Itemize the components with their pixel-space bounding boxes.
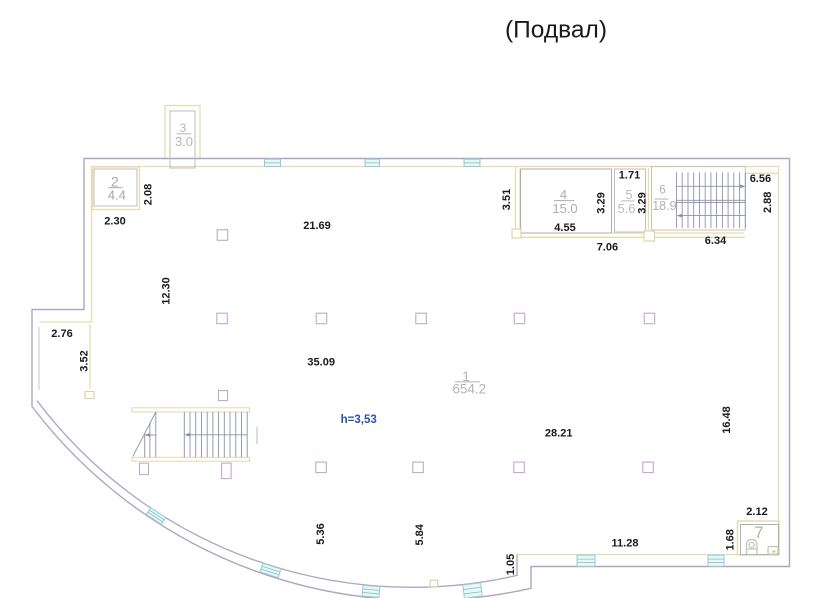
svg-text:15.0: 15.0 [552,201,577,216]
svg-text:12.30: 12.30 [160,277,172,305]
svg-text:1.71: 1.71 [619,170,640,182]
svg-text:5.36: 5.36 [315,523,327,544]
svg-text:5.84: 5.84 [414,523,426,545]
svg-text:4.55: 4.55 [554,222,575,234]
svg-text:4: 4 [560,187,567,202]
svg-text:3.51: 3.51 [501,189,513,210]
svg-text:28.21: 28.21 [545,428,573,440]
svg-text:3.29: 3.29 [596,192,608,213]
svg-text:5.6: 5.6 [617,201,635,216]
svg-text:7.06: 7.06 [597,241,618,253]
svg-text:3.29: 3.29 [637,192,649,213]
svg-text:6.56: 6.56 [750,173,771,185]
svg-text:4.4: 4.4 [108,187,126,202]
svg-text:35.09: 35.09 [307,357,335,369]
svg-text:7: 7 [754,524,763,542]
svg-text:h=3,53: h=3,53 [341,414,377,426]
svg-text:18.9: 18.9 [652,199,676,213]
svg-text:1.68: 1.68 [725,529,737,550]
svg-text:5: 5 [625,187,632,202]
svg-text:2.08: 2.08 [143,184,155,205]
svg-text:16.48: 16.48 [721,406,733,434]
svg-text:11.28: 11.28 [612,538,639,550]
svg-text:2.30: 2.30 [104,216,125,228]
svg-text:6.34: 6.34 [705,235,727,247]
svg-text:2.88: 2.88 [762,192,774,213]
svg-text:3.52: 3.52 [79,350,91,371]
svg-text:1.05: 1.05 [505,554,517,575]
svg-text:21.69: 21.69 [303,220,331,232]
svg-text:3.0: 3.0 [175,134,193,149]
svg-text:2.12: 2.12 [746,506,767,518]
svg-text:(Подвал): (Подвал) [505,17,607,44]
svg-text:2.76: 2.76 [51,328,72,340]
svg-text:654.2: 654.2 [452,381,486,396]
svg-text:3: 3 [180,121,187,135]
svg-text:6: 6 [659,185,665,197]
